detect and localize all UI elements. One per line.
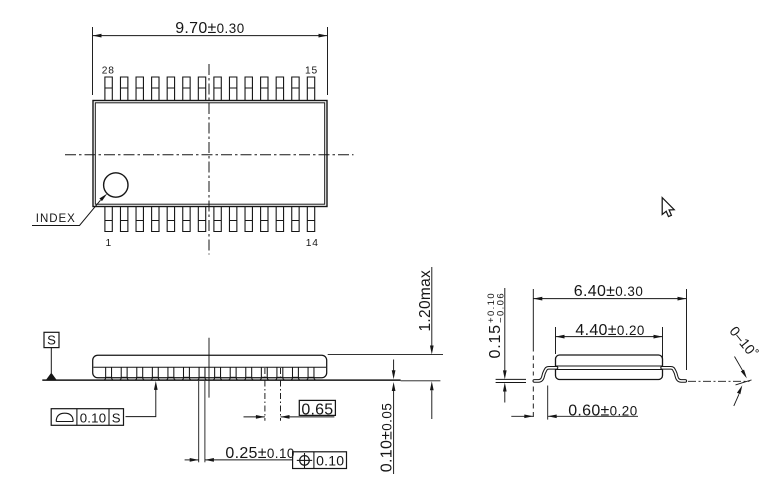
svg-text:14: 14 <box>306 238 319 249</box>
svg-text:S: S <box>47 333 56 348</box>
svg-text:0.65: 0.65 <box>301 401 333 418</box>
svg-text:−0.06: −0.06 <box>496 292 507 323</box>
svg-text:9.70±0.30: 9.70±0.30 <box>175 20 244 37</box>
svg-text:1: 1 <box>106 238 112 249</box>
svg-text:0.25±0.10: 0.25±0.10 <box>225 445 294 462</box>
svg-text:0.10: 0.10 <box>316 453 344 469</box>
svg-text:4.40±0.20: 4.40±0.20 <box>575 322 644 339</box>
svg-text:INDEX: INDEX <box>36 213 76 225</box>
svg-text:15: 15 <box>305 66 318 77</box>
svg-text:1.20max: 1.20max <box>417 270 434 332</box>
svg-text:0.10: 0.10 <box>80 410 106 425</box>
svg-text:0.60±0.20: 0.60±0.20 <box>568 402 637 419</box>
svg-text:S: S <box>112 410 121 425</box>
svg-text:0.10±0.05: 0.10±0.05 <box>378 403 395 472</box>
svg-text:0.15: 0.15 <box>487 324 504 358</box>
svg-text:28: 28 <box>102 66 115 77</box>
svg-text:6.40±0.30: 6.40±0.30 <box>574 283 643 300</box>
